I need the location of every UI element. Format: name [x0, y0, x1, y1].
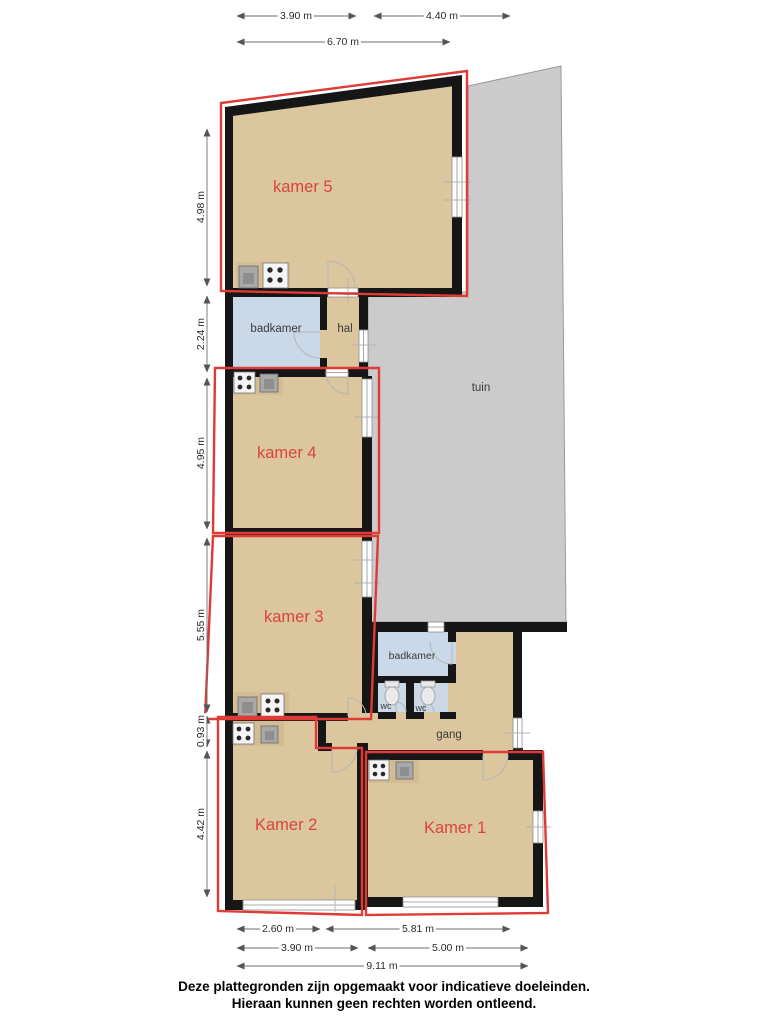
label-wc-left: wc — [380, 701, 392, 711]
door-gap — [396, 712, 406, 719]
label-kamer4: kamer 4 — [257, 444, 317, 462]
sink-icon — [260, 374, 278, 392]
wall-segment — [362, 376, 372, 379]
door-gap — [424, 712, 440, 719]
label-badkamer-top: badkamer — [250, 323, 301, 335]
dim-label-top-1: 3.90 m — [280, 10, 312, 22]
dim-label-bottom-4: 5.00 m — [432, 942, 464, 954]
sink-icon — [238, 697, 257, 716]
wall-segment — [225, 296, 233, 376]
wall-segment — [452, 78, 462, 157]
dim-label-bottom-5: 9.11 m — [366, 960, 398, 972]
footer-line-1: Deze plattegronden zijn opgemaakt voor i… — [178, 979, 590, 994]
toilet-icon — [421, 681, 435, 705]
wall-segment — [225, 110, 233, 296]
dim-label-left-6: 4.42 m — [195, 808, 207, 840]
stove-icon — [263, 263, 288, 288]
wall-segment — [368, 622, 428, 632]
footer-line-2: Hieraan kunnen geen rechten worden ontle… — [232, 996, 537, 1011]
wall-segment — [225, 376, 233, 535]
wall-segment — [452, 217, 462, 296]
dim-label-top-2: 4.40 m — [426, 10, 458, 22]
wall-segment — [362, 437, 372, 528]
wall-segment — [362, 622, 378, 713]
dim-label-left-2: 2.24 m — [195, 318, 207, 350]
label-hal: hal — [337, 323, 352, 335]
dim-label-left-4: 5.55 m — [195, 609, 207, 641]
wall-segment — [406, 712, 424, 719]
sink-icon — [261, 726, 278, 743]
wall-segment — [448, 664, 456, 676]
wall-segment — [225, 900, 243, 910]
wall-segment — [320, 296, 327, 330]
dim-label-bottom-2: 5.81 m — [402, 923, 434, 935]
dim-label-left-3: 4.95 m — [195, 437, 207, 469]
floorplan-svg: kamer 5 badkamer hal tuin kamer 4 kamer … — [0, 0, 768, 1024]
dim-label-bottom-1: 2.60 m — [262, 923, 294, 935]
label-badkamer-mid: badkamer — [389, 650, 436, 662]
wall-segment — [362, 597, 372, 622]
wall-segment — [440, 712, 456, 719]
room-kamer5-floor — [229, 81, 459, 292]
wall-segment — [448, 632, 456, 642]
wall-segment — [444, 622, 567, 632]
door-gap — [320, 330, 327, 358]
wall-segment — [363, 897, 403, 907]
wall-segment — [378, 712, 396, 719]
sink-icon — [396, 762, 413, 779]
label-kamer2: Kamer 2 — [255, 816, 317, 834]
sink-icon — [239, 266, 258, 288]
wall-segment — [513, 748, 523, 760]
wall-segment — [225, 713, 233, 910]
stove-icon — [234, 372, 255, 393]
dim-label-top-3: 6.70 m — [327, 36, 359, 48]
floorplan-page: kamer 5 badkamer hal tuin kamer 4 kamer … — [0, 0, 768, 1024]
dim-label-bottom-3: 3.90 m — [281, 942, 313, 954]
wall-segment — [225, 536, 233, 720]
label-tuin: tuin — [472, 382, 491, 394]
dim-label-left-1: 4.98 m — [195, 191, 207, 223]
wall-segment — [359, 292, 368, 330]
stove-icon — [369, 760, 389, 780]
label-wc-right: wc — [415, 703, 427, 713]
stove-icon — [233, 723, 254, 744]
wall-segment — [533, 843, 543, 907]
label-kamer3: kamer 3 — [264, 608, 324, 626]
wall-segment — [533, 752, 543, 811]
dim-label-left-5: 0.93 m — [195, 715, 207, 747]
wall-segment — [513, 622, 522, 718]
stove-icon — [261, 694, 284, 717]
label-kamer5: kamer 5 — [273, 178, 333, 196]
label-gang: gang — [436, 729, 462, 741]
label-kamer1: Kamer 1 — [424, 819, 486, 837]
wall-segment — [406, 683, 414, 712]
